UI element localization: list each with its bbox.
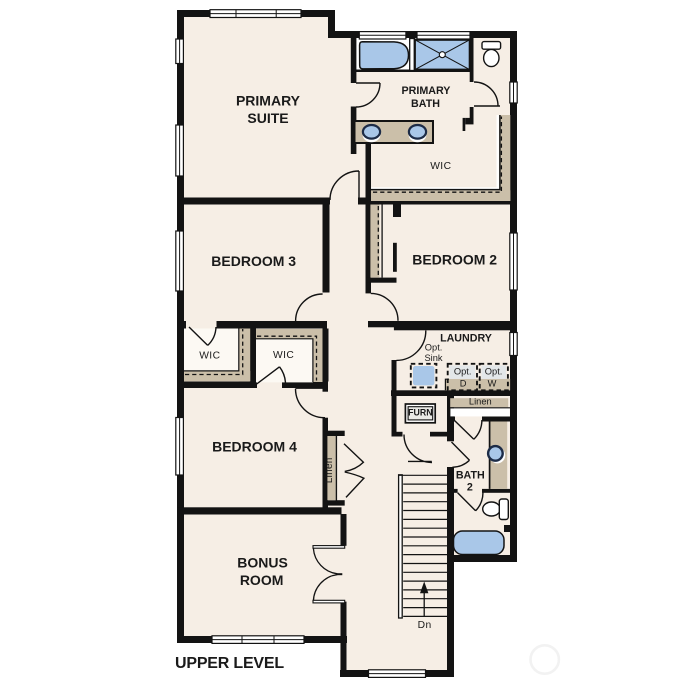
svg-text:BONUS: BONUS	[237, 554, 288, 570]
svg-text:D: D	[460, 379, 467, 389]
svg-text:Opt.: Opt.	[454, 367, 472, 377]
svg-text:ROOM: ROOM	[240, 572, 284, 588]
svg-text:BATH: BATH	[456, 470, 485, 482]
svg-text:WIC: WIC	[430, 161, 451, 172]
svg-text:SUITE: SUITE	[247, 110, 288, 126]
svg-text:2: 2	[467, 482, 473, 494]
svg-text:Opt.: Opt.	[425, 342, 443, 352]
svg-text:WIC: WIC	[273, 350, 294, 361]
svg-text:BEDROOM 2: BEDROOM 2	[412, 252, 497, 268]
svg-text:Opt.: Opt.	[485, 367, 503, 377]
svg-text:Dn: Dn	[418, 620, 432, 631]
svg-text:W: W	[488, 379, 497, 389]
svg-text:Linen: Linen	[324, 457, 335, 483]
svg-text:PRIMARY: PRIMARY	[236, 93, 301, 109]
svg-text:PRIMARY: PRIMARY	[402, 85, 451, 97]
svg-text:BEDROOM 3: BEDROOM 3	[211, 253, 296, 269]
svg-text:LAUNDRY: LAUNDRY	[440, 333, 492, 345]
svg-text:Sink: Sink	[424, 353, 442, 363]
svg-text:BATH: BATH	[411, 98, 440, 110]
svg-text:Linen: Linen	[469, 397, 492, 407]
svg-text:WIC: WIC	[199, 351, 220, 362]
svg-text:FURN: FURN	[408, 408, 432, 418]
svg-text:UPPER LEVEL: UPPER LEVEL	[175, 655, 284, 672]
svg-text:BEDROOM 4: BEDROOM 4	[212, 438, 297, 454]
